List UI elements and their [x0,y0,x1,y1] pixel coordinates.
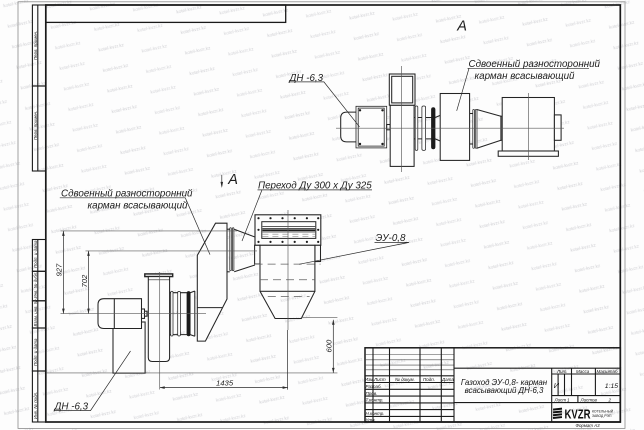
svg-text:всасывающий ДН-6,3: всасывающий ДН-6,3 [465,386,544,395]
svg-text:Подп. и дата: Подп. и дата [33,338,38,366]
svg-text:Лист: Лист [554,398,567,403]
svg-text:1:15: 1:15 [605,383,618,390]
svg-text:А: А [456,19,467,35]
svg-text:Т.контр.: Т.контр. [366,398,384,403]
svg-text:КОТЕЛЬНЫЙ: КОТЕЛЬНЫЙ [592,410,614,414]
svg-text:Лист: Лист [373,377,386,382]
svg-text:Инв. № дубл.: Инв. № дубл. [33,271,38,298]
svg-text:карман всасывающий: карман всасывающий [475,71,576,82]
svg-text:Масштаб: Масштаб [597,369,618,374]
svg-text:Взам. инв. №: Взам. инв. № [33,299,38,326]
svg-text:Изм.: Изм. [365,377,375,382]
svg-text:Лит.: Лит. [556,369,568,374]
svg-text:KVZR: KVZR [565,408,591,422]
svg-text:Перв. примен.: Перв. примен. [33,31,38,60]
svg-text:1435: 1435 [216,378,234,387]
svg-text:А: А [227,172,238,188]
svg-text:Листов: Листов [580,398,598,403]
svg-text:Инв. № подл.: Инв. № подл. [33,392,38,419]
svg-text:И: И [554,381,560,390]
svg-text:Подп. и дата: Подп. и дата [33,240,38,268]
svg-text:600: 600 [325,339,334,353]
svg-text:Подп.: Подп. [423,377,435,382]
svg-text:Утв.: Утв. [366,417,376,422]
svg-text:Пров.: Пров. [366,391,378,396]
svg-text:702: 702 [80,274,89,288]
svg-text:Масса: Масса [576,369,590,374]
svg-text:Разраб.: Разраб. [366,384,382,389]
svg-text:Н.контр.: Н.контр. [366,411,385,416]
svg-text:Перв. примен.: Перв. примен. [33,111,38,140]
svg-text:2: 2 [608,398,612,403]
svg-text:ДН -6,3: ДН -6,3 [54,402,89,413]
svg-text:Формат А3: Формат А3 [576,423,601,428]
svg-text:927: 927 [55,263,64,277]
svg-text:ЗАВОД РЭП: ЗАВОД РЭП [592,414,612,418]
svg-text:Дата: Дата [441,377,454,382]
svg-text:карман всасывающий: карман всасывающий [88,200,189,211]
svg-text:№ докум.: № докум. [395,377,415,382]
